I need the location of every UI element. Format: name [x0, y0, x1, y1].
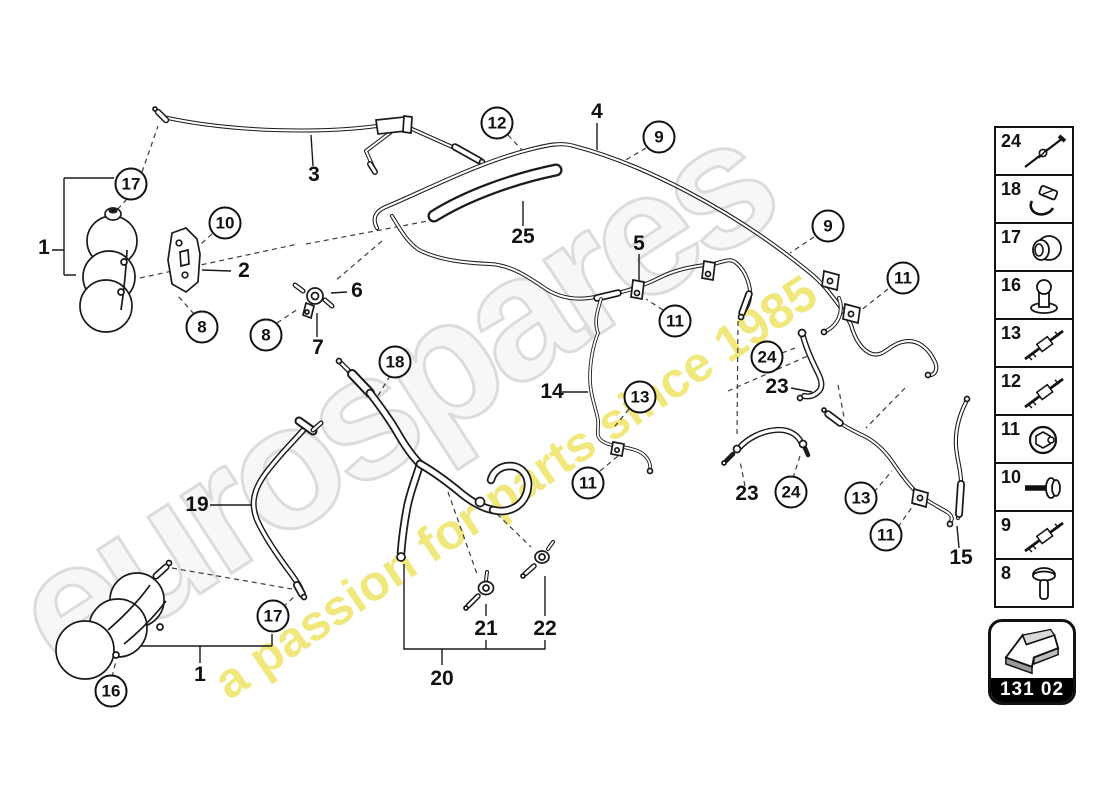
direction-arrow-icon — [991, 622, 1073, 678]
legend-item-17[interactable]: 17 — [994, 222, 1074, 272]
part-callout-13[interactable]: 13 — [624, 381, 657, 414]
pan-screw-icon — [1017, 563, 1071, 605]
legend-item-8[interactable]: 8 — [994, 558, 1074, 608]
changeover-valve — [295, 285, 487, 580]
part-callout-11[interactable]: 11 — [572, 467, 605, 500]
part-callout-10[interactable]: 10 — [209, 207, 242, 240]
part-callout-16[interactable]: 16 — [95, 675, 128, 708]
part-callout-17[interactable]: 17 — [257, 600, 290, 633]
cable-tie-icon — [1017, 131, 1071, 173]
part-label-23[interactable]: 23 — [735, 482, 758, 506]
part-label-25[interactable]: 25 — [511, 225, 534, 249]
leader-lines-and-brackets — [52, 123, 959, 665]
legend-item-number: 9 — [1001, 515, 1011, 536]
mounting-bracket — [168, 228, 200, 292]
legend-item-12[interactable]: 12 — [994, 366, 1074, 416]
part-callout-17[interactable]: 17 — [115, 168, 148, 201]
part-callout-24[interactable]: 24 — [751, 341, 784, 374]
legend-item-10[interactable]: 10 — [994, 462, 1074, 512]
vacuum-line-19 — [254, 421, 321, 600]
part-label-14[interactable]: 14 — [540, 380, 563, 404]
check-valve-22 — [521, 542, 553, 578]
part-callout-11[interactable]: 11 — [887, 262, 920, 295]
part-label-1[interactable]: 1 — [38, 236, 50, 260]
part-callout-11[interactable]: 11 — [659, 305, 692, 338]
hex-bolt-icon — [1017, 467, 1071, 509]
legend-item-18[interactable]: 18 — [994, 174, 1074, 224]
part-label-7[interactable]: 7 — [312, 336, 324, 360]
part-callout-12[interactable]: 12 — [481, 107, 514, 140]
diagram-ref-box[interactable]: 131 02 — [988, 619, 1076, 705]
hose-assembly-20 — [337, 359, 529, 562]
fasteners-legend: 241817161312111098 — [994, 126, 1074, 608]
part-callout-8[interactable]: 8 — [250, 319, 283, 352]
part-label-2[interactable]: 2 — [238, 259, 250, 283]
parts-diagram-page: eurospares a passion for parts since 198… — [0, 0, 1100, 800]
part-label-22[interactable]: 22 — [533, 617, 556, 641]
vacuum-reservoir-rear — [56, 561, 172, 680]
vacuum-hose-23-lower — [722, 430, 808, 465]
part-label-1[interactable]: 1 — [194, 663, 206, 687]
part-callout-9[interactable]: 9 — [643, 121, 676, 154]
part-label-20[interactable]: 20 — [430, 667, 453, 691]
part-label-19[interactable]: 19 — [185, 493, 208, 517]
diagram-code: 131 02 — [991, 678, 1073, 702]
threaded-stud-icon — [1017, 371, 1071, 413]
part-callout-9[interactable]: 9 — [812, 210, 845, 243]
part-label-3[interactable]: 3 — [308, 163, 320, 187]
part-callout-11[interactable]: 11 — [870, 519, 903, 552]
rubber-mount-icon — [1017, 275, 1071, 317]
union-nut-icon — [1017, 419, 1071, 461]
threaded-stud-icon — [1017, 323, 1071, 365]
part-callout-18[interactable]: 18 — [379, 346, 412, 379]
legend-item-24[interactable]: 24 — [994, 126, 1074, 176]
grommet-icon — [1017, 227, 1071, 269]
part-label-6[interactable]: 6 — [351, 279, 363, 303]
part-callout-24[interactable]: 24 — [775, 476, 808, 509]
part-callout-13[interactable]: 13 — [845, 482, 878, 515]
threaded-stud-icon — [1017, 515, 1071, 557]
part-label-4[interactable]: 4 — [591, 100, 603, 124]
part-label-5[interactable]: 5 — [633, 232, 645, 256]
part-label-21[interactable]: 21 — [474, 617, 497, 641]
legend-item-9[interactable]: 9 — [994, 510, 1074, 560]
legend-item-13[interactable]: 13 — [994, 318, 1074, 368]
part-label-23[interactable]: 23 — [765, 375, 788, 399]
part-callout-8[interactable]: 8 — [186, 311, 219, 344]
hose-clip-icon — [1017, 179, 1071, 221]
legend-item-number: 8 — [1001, 563, 1011, 584]
vacuum-reservoir-front — [80, 208, 137, 332]
legend-item-11[interactable]: 11 — [994, 414, 1074, 464]
vacuum-line-5 — [392, 216, 750, 320]
check-valve-21 — [464, 572, 494, 610]
legend-item-16[interactable]: 16 — [994, 270, 1074, 320]
part-label-15[interactable]: 15 — [949, 546, 972, 570]
